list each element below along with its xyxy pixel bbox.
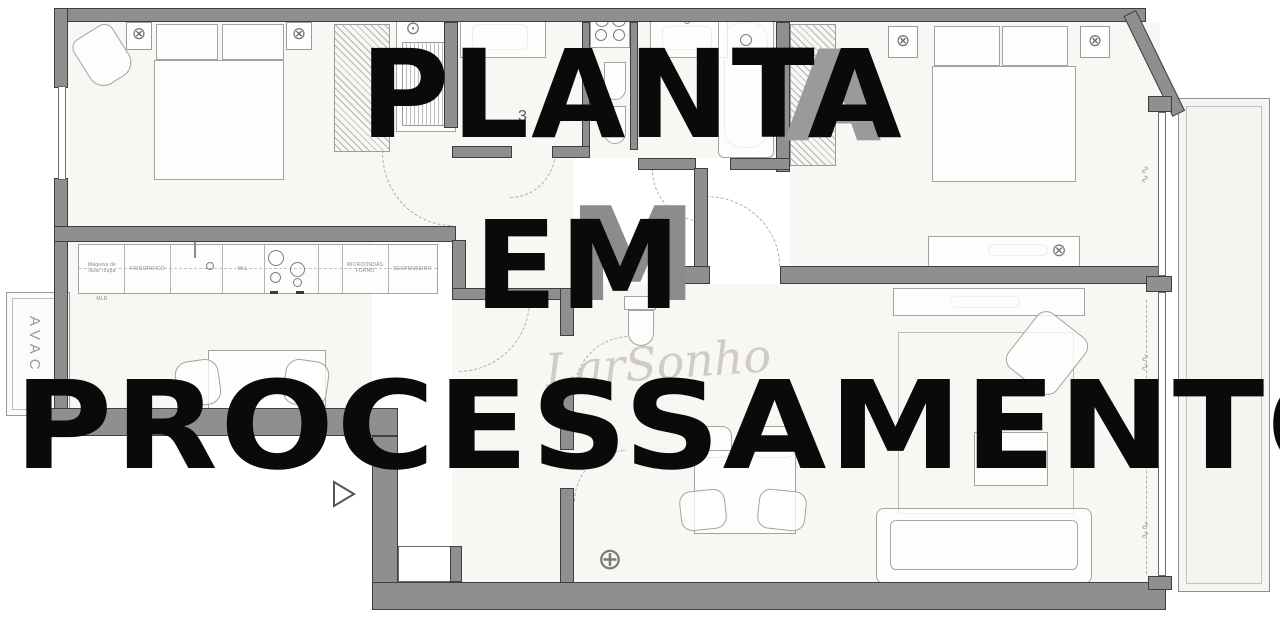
- wall: [54, 226, 456, 242]
- bed-bedroom1: [154, 60, 284, 180]
- counter-divider: [264, 245, 265, 293]
- ceiling-light-icon: ⊕: [594, 542, 626, 577]
- hob-burner: [268, 250, 284, 266]
- wall: [54, 8, 68, 88]
- balcony-inner-line: [1186, 106, 1262, 584]
- wall-stub: [1148, 576, 1172, 590]
- nightstand-sconce-icon: ⊗: [1080, 26, 1110, 58]
- bed-bedroom2: [932, 66, 1076, 182]
- microwave-label: MICROONDAS FORNO: [343, 262, 387, 274]
- sofa-seat-line: [890, 520, 1078, 570]
- curtain-squiggle: ∿∿: [1139, 165, 1152, 183]
- pillow: [1002, 26, 1068, 66]
- wall: [450, 546, 462, 582]
- kitchen-faucet: [194, 242, 196, 258]
- window-left: [58, 86, 66, 180]
- sconce-icon: ⊗: [1048, 240, 1070, 261]
- wall: [452, 240, 466, 294]
- pillow: [934, 26, 1000, 66]
- counter-divider: [222, 245, 223, 293]
- washer-sub-label: MLR: [84, 296, 120, 302]
- watermark-line2: EM: [474, 205, 683, 327]
- microwave-label-line2: FORNO: [355, 268, 374, 274]
- pillow: [222, 24, 284, 60]
- watermark-line1: PLANTA: [360, 34, 904, 156]
- wall: [780, 266, 1160, 284]
- hob-mark: [270, 291, 278, 294]
- door-arc-bedroom2: [706, 196, 780, 266]
- pillow: [156, 24, 218, 60]
- window-bedroom2: [1158, 112, 1166, 276]
- counter-divider: [124, 245, 125, 293]
- counter-divider: [170, 245, 171, 293]
- wall: [372, 582, 1166, 610]
- fridge-label: FRIGORÍFICO: [126, 266, 169, 272]
- pantry-label: DESPENSEIRO: [389, 266, 436, 272]
- washing-machine-label: Máquina de lavar roupa: [84, 262, 120, 274]
- counter-divider: [318, 245, 319, 293]
- wall: [560, 488, 574, 584]
- hob-mark: [296, 291, 304, 294]
- wall-niche: [398, 546, 456, 582]
- dishwasher-label: MLL: [224, 266, 262, 272]
- console-table: [893, 288, 1085, 316]
- washer-label-line2: lavar roupa: [88, 268, 115, 274]
- wall-stub: [1146, 276, 1172, 292]
- hob-burner: [270, 272, 281, 283]
- nightstand-sconce-icon: ⊗: [286, 22, 312, 50]
- nightstand-sconce-icon: ⊗: [126, 22, 152, 50]
- hob-burner: [293, 278, 302, 287]
- wall-stub: [1148, 96, 1172, 112]
- watermark-line3: PROCESSAMENTO: [14, 365, 1280, 487]
- floor-plan: ⊗ ⊗ ⊙ ⊗ ⊗ ⊗ ⊕: [0, 0, 1280, 622]
- kitchen-faucet-knob: [206, 262, 214, 270]
- wall: [54, 8, 1146, 22]
- curtain-squiggle: ∿∿: [1139, 521, 1152, 539]
- hob-burner: [290, 262, 305, 277]
